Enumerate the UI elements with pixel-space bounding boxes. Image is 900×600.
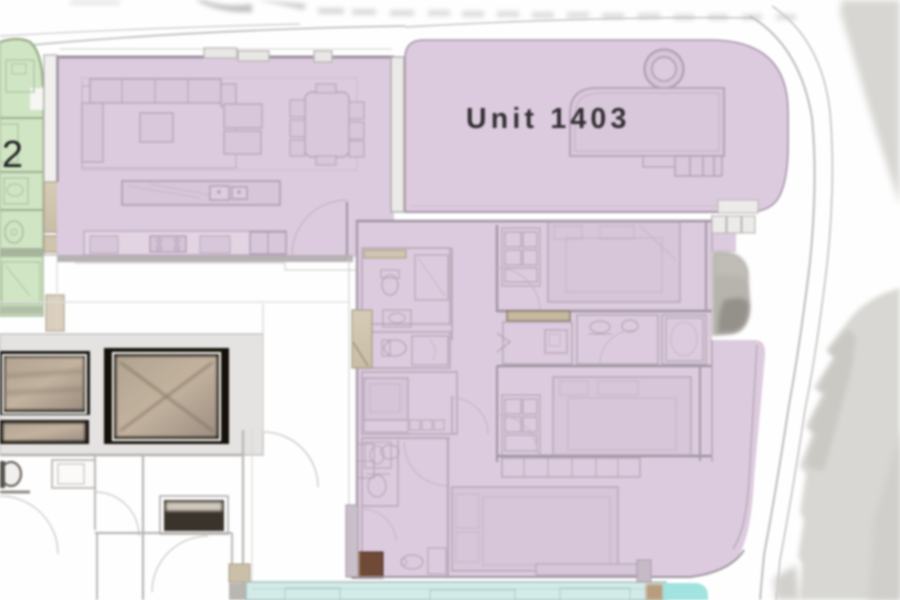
svg-text:2: 2 bbox=[2, 134, 23, 176]
svg-text:Unit 1403: Unit 1403 bbox=[466, 103, 631, 135]
